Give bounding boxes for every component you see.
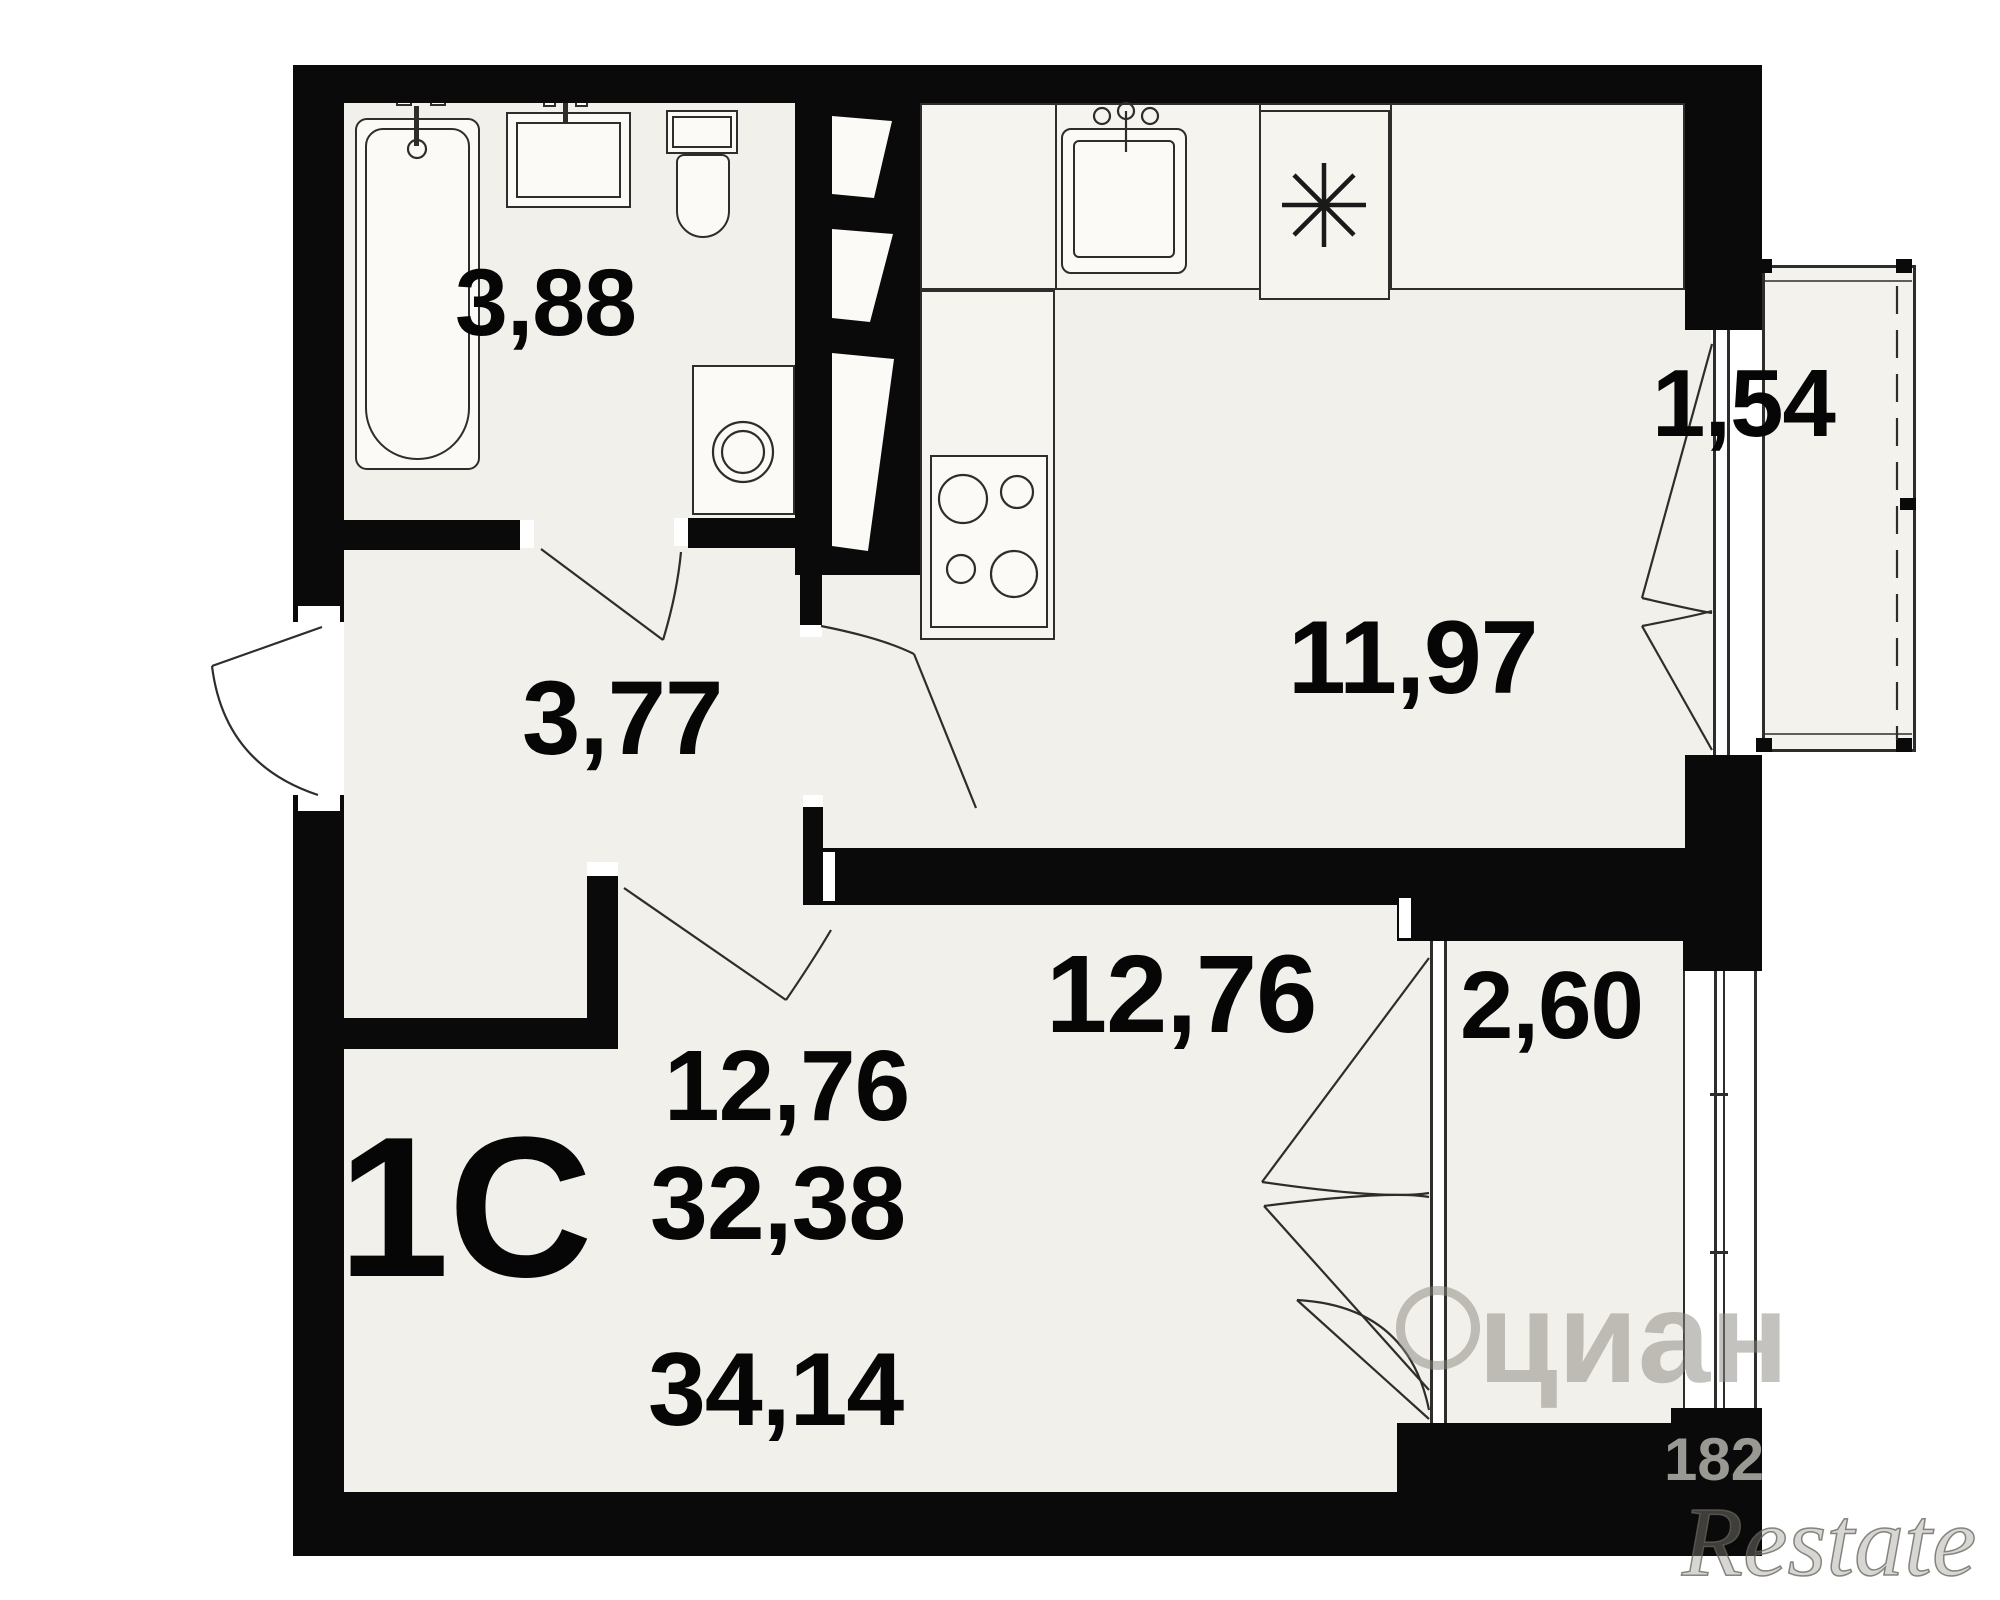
jamb-hall-stub-top: [587, 862, 618, 876]
agency-watermark: Restate: [1682, 1492, 1976, 1592]
appliance-box: [1259, 110, 1390, 300]
brand-watermark-ring: [1396, 1286, 1480, 1370]
wall-stub-upper: [800, 537, 822, 625]
balcony-corner-tick-4: [1896, 738, 1912, 752]
vent-shaft: [795, 103, 920, 575]
balcony-top-area-label: 1,54: [1652, 356, 1835, 452]
wall-bathroom-bottom-left: [344, 520, 520, 550]
jamb-bathdoor-left: [520, 520, 534, 548]
washing-machine-icon: [692, 365, 795, 515]
jamb-stub-lower: [803, 795, 823, 807]
watermark-digits: 182: [1664, 1430, 1764, 1490]
wall-divider-kitchen-living: [823, 848, 1397, 905]
wall-left-lower: [293, 795, 344, 1556]
kitchen-sink-inner: [1073, 140, 1175, 258]
entrance-door-arc: [212, 666, 318, 795]
jamb-bathdoor-right: [674, 518, 688, 546]
wall-bottom: [293, 1492, 1455, 1556]
window260-tick-1: [1710, 1093, 1728, 1096]
brand-watermark: циан: [1478, 1272, 1789, 1402]
jamb-entrance-bottom: [298, 795, 340, 811]
balcony-bottom-area-label: 2,60: [1460, 958, 1643, 1054]
kitchen-area-label: 11,97: [1288, 606, 1538, 710]
wall-top: [298, 65, 1762, 103]
stove-icon: [930, 455, 1048, 628]
floorplan-canvas: 3,88 3,77 11,97 1,54 12,76 2,60 1С 12,76…: [0, 0, 2000, 1600]
wall-hall-horizontal: [344, 1018, 587, 1049]
bath-sink-inner: [516, 122, 621, 198]
wall-balcony260-bottom: [1397, 1423, 1671, 1556]
summary-main-area: 32,38: [650, 1152, 905, 1256]
balcony-mid-tick: [1900, 498, 1916, 510]
counter-divider-1: [1055, 103, 1057, 290]
balcony-corner-tick-2: [1896, 259, 1912, 273]
wall-left-upper: [293, 65, 344, 622]
counter-divider-3: [1390, 103, 1392, 290]
wall-bathroom-bottom-right: [688, 518, 803, 548]
wall-corner-top-right: [1685, 65, 1762, 330]
toilet-bowl: [676, 154, 730, 238]
summary-living-area: 12,76: [664, 1036, 909, 1136]
wall-right-mid: [1685, 755, 1762, 941]
wall-hall-stub: [587, 876, 618, 1049]
bathroom-area-label: 3,88: [455, 256, 636, 351]
unit-type-label: 1С: [338, 1108, 592, 1308]
toilet-tank-inner: [672, 116, 732, 148]
jamb-divider-left: [823, 852, 835, 901]
window260-tick-2: [1710, 1251, 1728, 1254]
jamb-partition-top: [1399, 898, 1411, 938]
bathtub-faucet-stem: [414, 106, 419, 146]
entrance-door-leaf: [212, 627, 322, 666]
balcony-top-frame: [1762, 265, 1916, 752]
living-room-area-label: 12,76: [1046, 940, 1316, 1050]
wall-stub-lower: [803, 807, 823, 905]
summary-total-area: 34,14: [648, 1338, 903, 1442]
jamb-entrance-top: [298, 606, 340, 622]
jamb-stub-upper: [800, 625, 822, 637]
wall-window260-top-block: [1683, 941, 1762, 971]
balcony-corner-tick-3: [1756, 738, 1772, 752]
hallway-area-label: 3,77: [522, 666, 722, 771]
wall-divider-balcony-block: [1397, 848, 1690, 941]
